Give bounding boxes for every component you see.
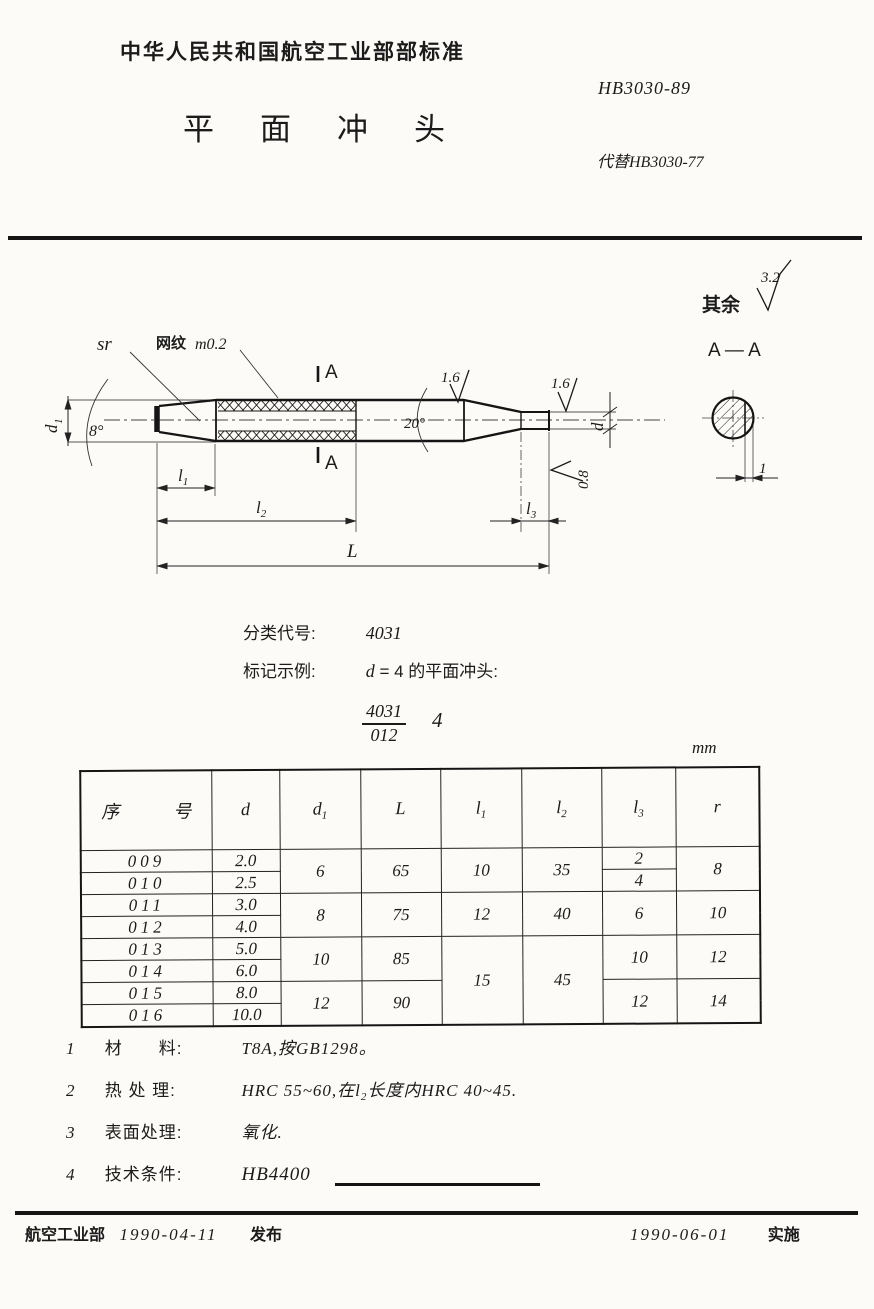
dim-d-label: d xyxy=(588,422,607,431)
note-text: 氧化. xyxy=(241,1123,282,1142)
cell-l3: 6 xyxy=(602,891,676,935)
cell-no: 009 xyxy=(81,850,212,873)
standard-number: HB3030-89 xyxy=(598,78,691,99)
marking-variable: d xyxy=(366,661,375,681)
angle20-label: 20° xyxy=(404,416,425,432)
footer-issuer: 航空工业部 xyxy=(25,1227,105,1244)
header-d1: d1 xyxy=(279,769,360,849)
footer-issue-date: 1990-04-11 xyxy=(119,1225,217,1244)
angle8-label: 8° xyxy=(89,423,104,440)
knurl-label-cjk: 网纹 xyxy=(156,334,187,352)
table-row: 015 8.0 12 90 12 14 xyxy=(82,978,761,1004)
dim-l1-label: l1 xyxy=(178,466,188,488)
table-row: 013 5.0 10 85 15 45 10 12 xyxy=(81,934,760,960)
cell-l1: 12 xyxy=(441,892,522,936)
cell-l1: 15 xyxy=(441,936,523,1025)
cell-d: 2.0 xyxy=(212,849,280,871)
header-l3: l3 xyxy=(601,767,675,847)
header-l2: l2 xyxy=(521,768,601,848)
section-view-a-a xyxy=(702,390,764,447)
marking-example-fraction: 4031 012 xyxy=(362,701,406,746)
cell-r: 10 xyxy=(676,890,760,935)
note-surface-treatment: 3 表面处理: 氧化. xyxy=(66,1118,283,1143)
note-text: HRC 55~60,在l2长度内HRC 40~45. xyxy=(241,1081,517,1100)
marking-example-suffix: 4 xyxy=(432,708,443,733)
sr-leader xyxy=(130,352,200,421)
header-r: r xyxy=(675,767,759,847)
cell-d: 3.0 xyxy=(212,893,280,915)
rough-taper-label: 1.6 xyxy=(441,370,460,386)
cell-d: 4.0 xyxy=(212,915,280,937)
dim-d1-base: d xyxy=(42,424,61,433)
table-row: 011 3.0 8 75 12 40 6 10 xyxy=(81,890,760,916)
cell-d: 5.0 xyxy=(212,937,280,959)
footer-effective-action: 实施 xyxy=(768,1227,800,1244)
cell-l1: 10 xyxy=(441,848,522,892)
cell-d1: 6 xyxy=(280,849,361,893)
replaces-note: 代替HB3030-77 xyxy=(597,148,704,172)
cell-r: 8 xyxy=(676,846,760,891)
section-mark-top-label: A xyxy=(325,362,338,383)
dim-l3-label: l3 xyxy=(526,499,537,521)
standard-document-page: 中华人民共和国航空工业部部标准 HB3030-89 平面冲头 代替HB3030-… xyxy=(0,0,874,1309)
section-circle xyxy=(713,398,754,439)
cell-l2: 45 xyxy=(522,935,603,1024)
cell-l2: 40 xyxy=(522,891,602,935)
cell-L: 85 xyxy=(361,936,441,980)
header-xuhao: 序 号 xyxy=(80,770,211,850)
rough-rest-prefix: 其余 xyxy=(702,293,741,316)
cell-d: 8.0 xyxy=(213,981,281,1003)
note-text: HB4400 xyxy=(241,1164,310,1185)
note-number: 1 xyxy=(66,1039,100,1059)
document-title: 平面冲头 xyxy=(183,104,491,149)
cell-L: 90 xyxy=(362,980,442,1025)
cell-d1: 10 xyxy=(280,937,361,981)
cell-d: 2.5 xyxy=(212,871,280,893)
end-of-text-line xyxy=(335,1183,540,1186)
dimension-table: 序 号 d d1 L l1 l2 l3 r 009 2.0 6 65 10 35… xyxy=(79,766,762,1028)
note-material: 1 材 料: T8A,按GB1298。 xyxy=(66,1034,377,1059)
cell-no: 016 xyxy=(82,1004,213,1027)
cell-l3: 4 xyxy=(602,869,676,891)
cell-L: 75 xyxy=(361,892,441,936)
replaces-text: 代替HB3030-77 xyxy=(597,154,704,171)
note-number: 3 xyxy=(66,1123,100,1143)
note-label: 技术条件: xyxy=(105,1160,237,1185)
knurl-leader xyxy=(240,350,278,398)
classification-value: 4031 xyxy=(366,623,402,643)
note-heat-treatment: 2 热 处 理: HRC 55~60,在l2长度内HRC 40~45. xyxy=(66,1076,517,1103)
footer-rule xyxy=(15,1211,858,1215)
section-title: A — A xyxy=(708,340,761,361)
dim-d-base: d xyxy=(588,422,607,431)
fraction-numerator: 4031 xyxy=(362,701,406,725)
footer-effective-date: 1990-06-01 xyxy=(630,1225,729,1244)
header-L: L xyxy=(360,769,440,849)
note-text: T8A,按GB1298。 xyxy=(241,1039,376,1058)
marking-rest: = 4 的平面冲头: xyxy=(379,662,498,681)
cell-r: 14 xyxy=(677,978,761,1023)
dimension-table-wrap: 序 号 d d1 L l1 l2 l3 r 009 2.0 6 65 10 35… xyxy=(79,766,762,1028)
note-number: 2 xyxy=(66,1081,100,1101)
note-label: 材 料: xyxy=(105,1034,237,1059)
rough-face-text: 0.8 xyxy=(576,470,592,489)
cell-l2: 35 xyxy=(522,847,602,891)
marking-label: 标记示例: xyxy=(243,657,361,682)
cell-no: 010 xyxy=(81,872,212,895)
cell-no: 014 xyxy=(81,960,212,983)
table-header-row: 序 号 d d1 L l1 l2 l3 r xyxy=(80,767,759,851)
note-label: 表面处理: xyxy=(105,1118,237,1143)
cell-d: 10.0 xyxy=(213,1003,281,1026)
unit-label: mm xyxy=(692,738,717,758)
note-label: 热 处 理: xyxy=(105,1076,237,1101)
cell-r: 12 xyxy=(676,934,760,979)
sr-label: sr xyxy=(97,334,112,355)
chord-dim-label: 1 xyxy=(759,461,767,477)
cell-no: 013 xyxy=(81,938,212,961)
dim-d1-label: d 1 xyxy=(42,419,65,434)
header-l1: l1 xyxy=(440,768,521,848)
marking-line: 标记示例: d = 4 的平面冲头: xyxy=(243,657,498,682)
note-number: 4 xyxy=(66,1165,100,1185)
cell-l3: 12 xyxy=(603,979,677,1024)
top-rule xyxy=(8,236,862,240)
cell-l3: 10 xyxy=(602,935,676,979)
cell-L: 65 xyxy=(361,848,441,892)
section-mark-bottom-label: A xyxy=(325,453,338,474)
dim-l2-label: l2 xyxy=(256,498,267,520)
rough-tip-label: 1.6 xyxy=(551,376,570,392)
footer-left: 航空工业部 1990-04-11 发布 xyxy=(25,1221,282,1245)
note-technical-conditions: 4 技术条件: HB4400 xyxy=(66,1160,311,1186)
footer-right: 1990-06-01 实施 xyxy=(630,1221,800,1245)
ministry-title: 中华人民共和国航空工业部部标准 xyxy=(120,36,465,66)
cell-no: 015 xyxy=(82,982,213,1005)
classification-label: 分类代号: xyxy=(243,619,361,644)
knurl-band-top xyxy=(218,401,356,411)
cell-d1: 8 xyxy=(280,893,361,937)
cell-l3: 2 xyxy=(602,847,676,869)
cell-d: 6.0 xyxy=(212,959,280,981)
roughness-symbols xyxy=(450,260,791,481)
fraction-denominator: 012 xyxy=(362,725,406,746)
header-d: d xyxy=(211,770,279,850)
rough-face-label: 0.8 xyxy=(576,470,592,489)
classification-line: 分类代号: 4031 xyxy=(243,619,402,644)
cell-no: 011 xyxy=(81,894,212,917)
cell-no: 012 xyxy=(81,916,212,939)
knurl-band-bottom xyxy=(218,431,356,441)
knurl-label-value: m0.2 xyxy=(195,336,227,353)
cell-d1: 12 xyxy=(281,981,362,1026)
dim-L-label: L xyxy=(346,541,358,562)
rough-rest-value: 3.2 xyxy=(760,270,780,286)
footer-issue-action: 发布 xyxy=(250,1227,282,1244)
dim-d1-sub: 1 xyxy=(53,419,65,425)
technical-drawing: A A sr 网 xyxy=(0,250,874,580)
